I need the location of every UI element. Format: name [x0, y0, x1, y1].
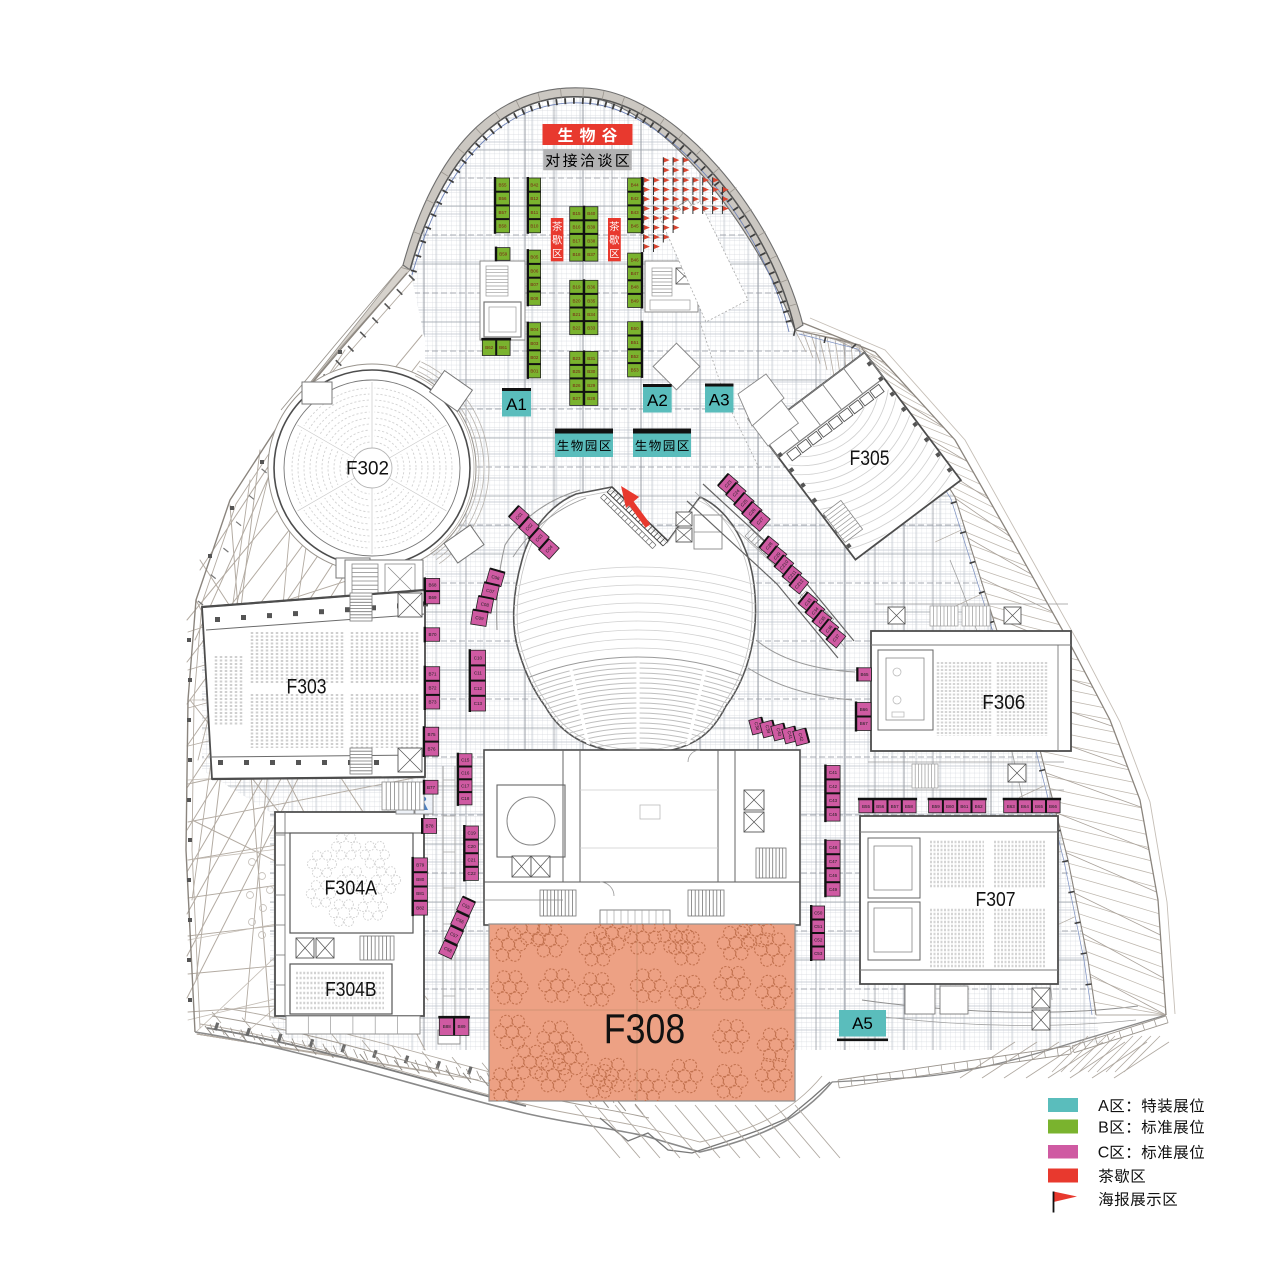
svg-text:B33: B33 — [587, 326, 596, 331]
svg-text:C42: C42 — [829, 784, 838, 789]
svg-text:B12: B12 — [530, 196, 539, 201]
svg-text:B56: B56 — [876, 804, 885, 809]
svg-text:B58: B58 — [905, 804, 914, 809]
svg-text:B59: B59 — [932, 804, 941, 809]
svg-text:B10: B10 — [530, 224, 539, 229]
svg-text:B28: B28 — [587, 396, 596, 401]
svg-text:C53: C53 — [814, 951, 823, 956]
svg-text:F302: F302 — [346, 459, 389, 480]
svg-text:B56: B56 — [498, 196, 507, 201]
svg-text:B05: B05 — [530, 255, 539, 260]
svg-text:B23: B23 — [572, 356, 581, 361]
svg-text:C45: C45 — [829, 812, 838, 817]
svg-text:A5: A5 — [852, 1014, 873, 1033]
svg-text:B: B — [1098, 1119, 1109, 1136]
svg-text:F307: F307 — [976, 889, 1016, 911]
svg-text:B46: B46 — [631, 258, 640, 263]
svg-text:B67: B67 — [860, 721, 869, 726]
svg-text:F305: F305 — [850, 447, 890, 470]
svg-text:B16: B16 — [572, 225, 581, 230]
svg-text:C13: C13 — [474, 701, 483, 706]
svg-text:F304A: F304A — [325, 878, 378, 900]
svg-text:B62: B62 — [485, 345, 494, 350]
svg-text:C19: C19 — [467, 830, 476, 835]
svg-text:C41: C41 — [829, 770, 838, 775]
svg-text:F306: F306 — [982, 692, 1025, 714]
svg-text:B62: B62 — [975, 804, 984, 809]
svg-text:B40: B40 — [587, 211, 596, 216]
svg-text:C15: C15 — [461, 758, 470, 763]
svg-text:B70: B70 — [428, 632, 437, 637]
svg-text:B64: B64 — [1021, 804, 1030, 809]
svg-text:B65: B65 — [860, 672, 869, 677]
svg-text:B35: B35 — [587, 298, 596, 303]
svg-text:B55: B55 — [862, 804, 871, 809]
svg-text:B63: B63 — [1007, 804, 1016, 809]
svg-text:F303: F303 — [287, 676, 327, 699]
svg-text:C17: C17 — [461, 783, 470, 788]
svg-text:C12: C12 — [474, 686, 483, 691]
svg-text:B59: B59 — [499, 252, 508, 257]
svg-text:C11: C11 — [474, 671, 482, 676]
svg-text:B75: B75 — [427, 732, 436, 737]
svg-text:F304B: F304B — [325, 979, 376, 1001]
svg-text:B53: B53 — [631, 368, 640, 373]
svg-text:B60: B60 — [946, 804, 955, 809]
svg-text:B03: B03 — [530, 341, 539, 346]
svg-text:B76: B76 — [427, 746, 436, 751]
svg-text:B51: B51 — [631, 340, 640, 345]
svg-text:B61: B61 — [960, 804, 969, 809]
svg-text:B81: B81 — [416, 891, 425, 896]
svg-text:C52: C52 — [814, 937, 823, 942]
svg-text:B58: B58 — [498, 224, 507, 229]
svg-text:B04: B04 — [530, 327, 539, 332]
svg-text:B18: B18 — [572, 252, 581, 257]
svg-text:B19: B19 — [572, 285, 581, 290]
svg-text:B77: B77 — [427, 785, 436, 790]
svg-text:B06: B06 — [530, 268, 539, 273]
svg-text:A: A — [1098, 1098, 1109, 1115]
svg-text:B22: B22 — [572, 326, 581, 331]
svg-text:B65: B65 — [1035, 804, 1044, 809]
svg-text:C49: C49 — [829, 887, 838, 892]
svg-text:A2: A2 — [647, 391, 668, 410]
svg-text:B01: B01 — [530, 369, 539, 374]
svg-text:B42: B42 — [530, 182, 539, 187]
svg-text:C43: C43 — [829, 798, 838, 803]
svg-text:B66: B66 — [860, 707, 869, 712]
svg-text:B27: B27 — [572, 396, 581, 401]
svg-text:B31: B31 — [587, 356, 596, 361]
svg-text:F308: F308 — [604, 1005, 685, 1052]
svg-text:B79: B79 — [416, 863, 425, 868]
svg-text:B15: B15 — [572, 211, 581, 216]
svg-text:B44: B44 — [631, 182, 640, 187]
svg-text:A3: A3 — [709, 391, 730, 410]
svg-text:C10: C10 — [474, 655, 483, 660]
svg-text:B36: B36 — [587, 285, 596, 290]
svg-text:B47: B47 — [631, 271, 640, 276]
svg-text:B71: B71 — [428, 671, 437, 676]
svg-text:B69: B69 — [428, 595, 437, 600]
svg-text:B11: B11 — [531, 210, 539, 215]
svg-text:C21: C21 — [467, 858, 476, 863]
svg-text:B21: B21 — [572, 312, 581, 317]
svg-text:B25: B25 — [572, 369, 581, 374]
svg-text:B66: B66 — [1049, 804, 1058, 809]
svg-text:B20: B20 — [572, 298, 581, 303]
svg-text:B02: B02 — [530, 355, 539, 360]
svg-text:B08: B08 — [530, 296, 539, 301]
svg-text:B39: B39 — [587, 225, 596, 230]
svg-text:B78: B78 — [425, 824, 434, 829]
svg-text:B34: B34 — [587, 312, 596, 317]
svg-text:B26: B26 — [572, 383, 581, 388]
svg-text:B55: B55 — [498, 182, 507, 187]
svg-text:C51: C51 — [814, 924, 823, 929]
svg-text:C20: C20 — [467, 844, 476, 849]
svg-text:B82: B82 — [416, 906, 425, 911]
svg-text:C50: C50 — [814, 910, 823, 915]
svg-text:B48: B48 — [631, 285, 640, 290]
svg-text:B80: B80 — [416, 877, 425, 882]
svg-text:B73: B73 — [428, 700, 437, 705]
svg-text:B68: B68 — [428, 582, 437, 587]
svg-text:B88: B88 — [443, 1024, 452, 1029]
svg-text:B45: B45 — [631, 224, 640, 229]
svg-text:B43: B43 — [631, 210, 640, 215]
svg-text:B52: B52 — [631, 354, 640, 359]
svg-text:B57: B57 — [891, 804, 900, 809]
svg-text:B57: B57 — [498, 210, 507, 215]
svg-text:B30: B30 — [587, 369, 596, 374]
svg-text:C46: C46 — [829, 873, 838, 878]
svg-text:B61: B61 — [499, 345, 508, 350]
svg-text:C48: C48 — [829, 845, 838, 850]
svg-text:B29: B29 — [587, 383, 596, 388]
svg-text:B49: B49 — [631, 298, 640, 303]
svg-text:B50: B50 — [631, 326, 640, 331]
svg-text:B37: B37 — [587, 252, 596, 257]
svg-text:B07: B07 — [530, 282, 539, 287]
svg-text:C22: C22 — [467, 871, 476, 876]
svg-text:C: C — [1098, 1145, 1110, 1162]
svg-text:C18: C18 — [461, 796, 470, 801]
svg-text:B38: B38 — [587, 238, 596, 243]
svg-text:B89: B89 — [457, 1024, 466, 1029]
svg-text:B42: B42 — [631, 196, 640, 201]
svg-text:A1: A1 — [506, 395, 527, 414]
svg-text:B17: B17 — [572, 238, 581, 243]
svg-text:C16: C16 — [461, 771, 470, 776]
svg-text:C47: C47 — [829, 859, 838, 864]
svg-text:B72: B72 — [428, 686, 437, 691]
